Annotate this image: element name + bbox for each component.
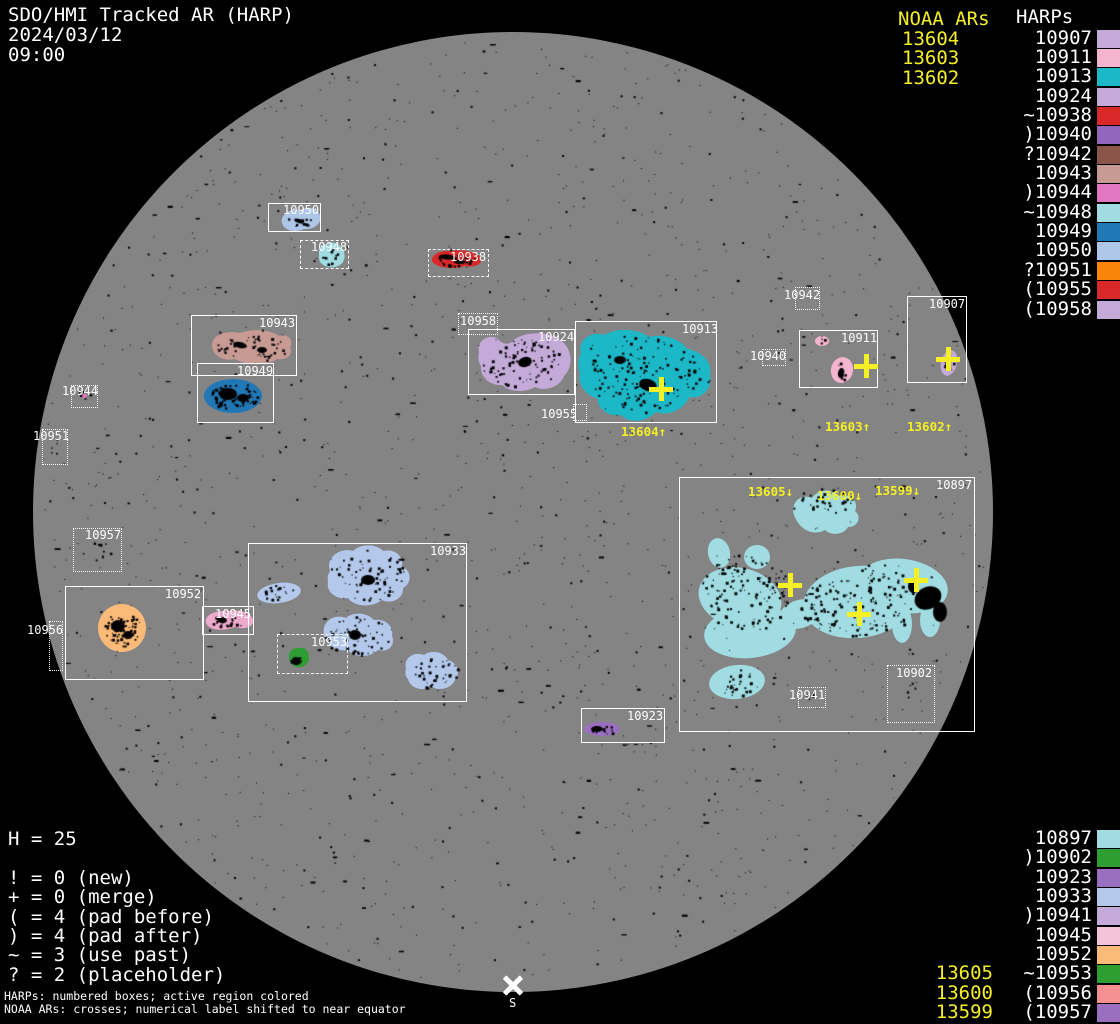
prefix-stat-line: ? = 2 (placeholder) <box>8 966 225 985</box>
harp-color-swatch <box>1097 262 1120 280</box>
noaa-cross-icon <box>649 377 673 401</box>
harp-color-swatch <box>1097 107 1120 125</box>
harp-color-swatch <box>1097 68 1120 86</box>
harp-box-label-10923: 10923 <box>627 710 663 723</box>
harp-box-label-10958: 10958 <box>460 315 496 328</box>
page-title: SDO/HMI Tracked AR (HARP) <box>8 6 294 25</box>
prefix-stat-line: + = 0 (merge) <box>8 888 157 907</box>
harp-color-swatch <box>1097 242 1120 260</box>
harp-legend-label: 10950 <box>972 241 1092 260</box>
harp-box-label-10933: 10933 <box>430 545 466 558</box>
footer-noaa-note: NOAA ARs: crosses; numerical label shift… <box>4 1003 406 1016</box>
noaa-ars-legend-title: NOAA ARs <box>898 10 990 29</box>
noaa-disk-label: 13599↓ <box>875 484 920 497</box>
harp-color-swatch <box>1097 907 1120 925</box>
south-pole-x-icon <box>502 974 524 996</box>
noaa-cross-icon <box>847 602 871 626</box>
harp-box-label-10948: 10948 <box>311 241 347 254</box>
harp-box-label-10955: 10955 <box>541 408 577 421</box>
harp-color-swatch <box>1097 30 1120 48</box>
harp-box-label-10942: 10942 <box>784 289 820 302</box>
time-text: 09:00 <box>8 46 65 65</box>
harp-box-label-10897: 10897 <box>936 479 972 492</box>
harp-box-label-10902: 10902 <box>896 667 932 680</box>
harp-box-label-10941: 10941 <box>789 689 825 702</box>
harp-box-10913 <box>575 321 717 423</box>
harp-box-label-10913: 10913 <box>682 323 718 336</box>
harp-color-swatch <box>1097 146 1120 164</box>
harp-box-10933 <box>248 543 467 702</box>
harp-legend-label: (10958 <box>972 300 1092 319</box>
harp-box-label-10938: 10938 <box>450 251 486 264</box>
harp-color-swatch <box>1097 184 1120 202</box>
harp-color-swatch <box>1097 301 1120 319</box>
harp-count-text: H = 25 <box>8 830 77 849</box>
harp-box-label-10956: 10956 <box>27 624 63 637</box>
harp-legend-label: (10955 <box>972 280 1092 299</box>
harp-legend-label: )10944 <box>972 183 1092 202</box>
harp-legend-label: (10957 <box>972 1003 1092 1022</box>
harp-color-swatch <box>1097 223 1120 241</box>
harp-legend-label: 10913 <box>972 67 1092 86</box>
noaa-disk-label: 13602↑ <box>907 420 952 433</box>
harp-color-swatch <box>1097 849 1120 867</box>
harp-color-swatch <box>1097 49 1120 67</box>
noaa-cross-icon <box>904 568 928 592</box>
harp-color-swatch <box>1097 281 1120 299</box>
harp-color-swatch <box>1097 927 1120 945</box>
harp-color-swatch <box>1097 946 1120 964</box>
solar-harp-plot: 1095010948109381094310949109441095110958… <box>0 0 1120 1024</box>
harp-color-swatch <box>1097 126 1120 144</box>
harp-box-label-10911: 10911 <box>841 332 877 345</box>
harp-box-label-10957: 10957 <box>85 529 121 542</box>
harp-legend-label: )10940 <box>972 125 1092 144</box>
noaa-legend-number: 13603 <box>902 49 972 68</box>
harp-box-label-10953: 10953 <box>311 636 347 649</box>
harp-legend-label: )10941 <box>972 906 1092 925</box>
harp-color-swatch <box>1097 985 1120 1003</box>
harp-box-label-10951: 10951 <box>33 430 69 443</box>
harp-color-swatch <box>1097 204 1120 222</box>
noaa-disk-label: 13600↓ <box>817 489 862 502</box>
noaa-cross-icon <box>936 347 960 371</box>
noaa-cross-icon <box>854 354 878 378</box>
noaa-disk-label: 13605↓ <box>748 485 793 498</box>
harp-box-label-10940: 10940 <box>750 350 786 363</box>
noaa-legend-number: 13602 <box>902 69 972 88</box>
harp-box-label-10944: 10944 <box>62 385 98 398</box>
harp-legend-label: )10902 <box>972 848 1092 867</box>
noaa-cross-icon <box>778 573 802 597</box>
harp-color-swatch <box>1097 165 1120 183</box>
noaa-disk-label: 13603↑ <box>825 420 870 433</box>
harp-box-label-10950: 10950 <box>283 204 319 217</box>
harp-box-label-10952: 10952 <box>165 588 201 601</box>
harp-legend-label: ~10953 <box>972 964 1092 983</box>
south-pole-label: S <box>509 996 516 1010</box>
harp-color-swatch <box>1097 830 1120 848</box>
prefix-stat-line: ~ = 3 (use past) <box>8 946 191 965</box>
harps-legend-title: HARPs <box>1016 8 1073 27</box>
harp-color-swatch <box>1097 1004 1120 1022</box>
date-text: 2024/03/12 <box>8 26 122 45</box>
harp-box-label-10907: 10907 <box>929 298 965 311</box>
harp-box-label-10949: 10949 <box>237 365 273 378</box>
harp-box-label-10945: 10945 <box>215 608 251 621</box>
harp-box-label-10943: 10943 <box>259 317 295 330</box>
harp-color-swatch <box>1097 888 1120 906</box>
harp-color-swatch <box>1097 965 1120 983</box>
harp-box-label-10924: 10924 <box>538 331 574 344</box>
noaa-disk-label: 13604↑ <box>621 425 666 438</box>
harp-color-swatch <box>1097 88 1120 106</box>
harp-color-swatch <box>1097 869 1120 887</box>
